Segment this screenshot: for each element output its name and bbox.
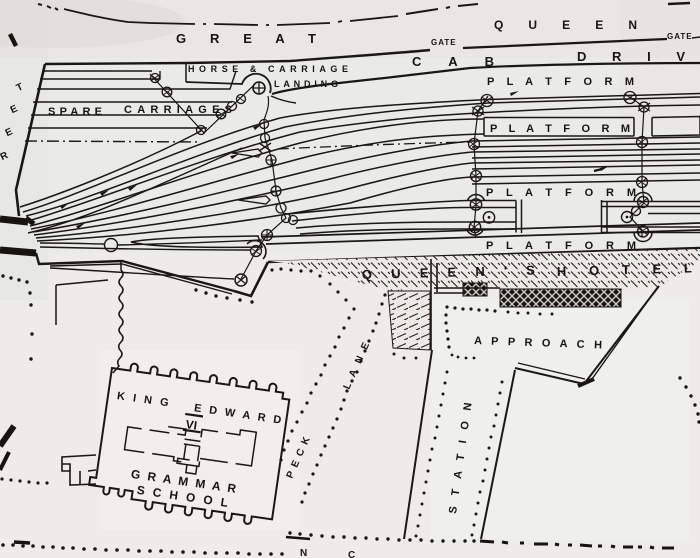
svg-text:N: N [300, 548, 307, 558]
svg-text:GATE: GATE [667, 32, 693, 41]
svg-text:C: C [348, 550, 355, 558]
svg-text:Q U E E N: Q U E E N [494, 18, 637, 32]
svg-text:G R E A T: G R E A T [176, 31, 316, 46]
svg-text:VI: VI [185, 417, 198, 432]
svg-text:GATE: GATE [431, 38, 457, 47]
svg-text:HORSE & CARRIAGE: HORSE & CARRIAGE [188, 64, 348, 74]
